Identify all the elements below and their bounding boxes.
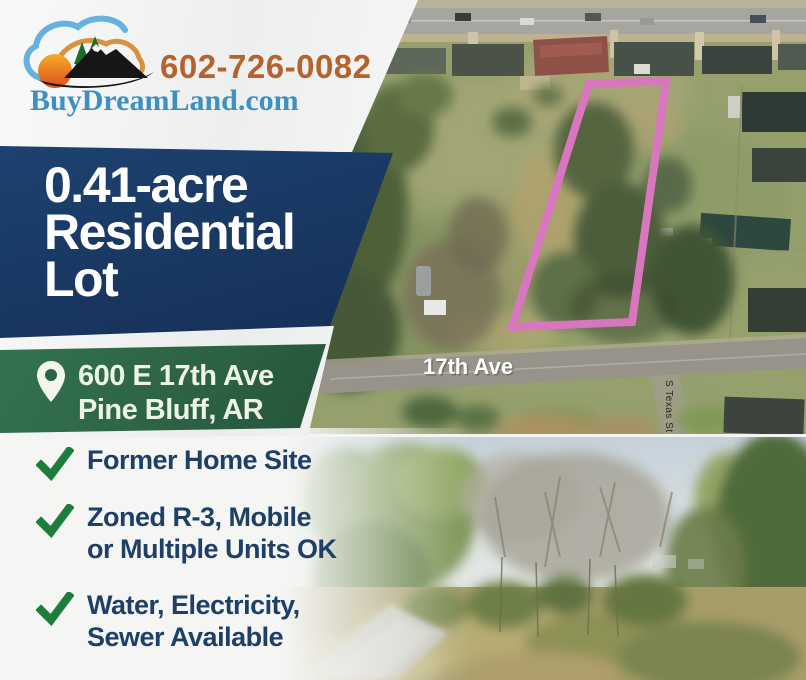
feature-line: Zoned R-3, Mobile [87, 501, 337, 533]
feature-item-former-home-site: Former Home Site [36, 444, 416, 481]
headline-text: 0.41-acre Residential Lot [44, 162, 294, 303]
address-text: 600 E 17th Ave Pine Bluff, AR [78, 359, 274, 427]
feature-list: Former Home Site Zoned R-3, Mobile or Mu… [36, 444, 416, 653]
phone-number: 602-726-0082 [160, 48, 372, 86]
website-text: BuyDreamLand.com [30, 84, 299, 118]
bottom-right-roof [723, 397, 804, 434]
location-pin-icon [36, 360, 66, 404]
headline-line-2: Residential [44, 209, 294, 256]
feature-line: Former Home Site [87, 444, 312, 476]
street-label-17th-ave: 17th Ave [423, 354, 513, 379]
feature-line: Sewer Available [87, 621, 300, 653]
address-box: 600 E 17th Ave Pine Bluff, AR [0, 342, 340, 438]
feature-text: Zoned R-3, Mobile or Multiple Units OK [87, 501, 337, 565]
checkmark-icon [36, 447, 74, 481]
checkmark-icon [36, 592, 74, 626]
sun-icon [38, 54, 72, 88]
flyer-canvas: 17th Ave 17th Ave S Texas St [0, 0, 806, 680]
headline-line-1: 0.41-acre [44, 162, 294, 209]
distant-vehicle [652, 555, 676, 568]
feature-item-zoning: Zoned R-3, Mobile or Multiple Units OK [36, 501, 416, 565]
feature-item-utilities: Water, Electricity, Sewer Available [36, 589, 416, 653]
cross-street-label: S Texas St [663, 380, 674, 433]
address-city-state: Pine Bluff, AR [78, 393, 274, 427]
address-street: 600 E 17th Ave [78, 359, 274, 393]
checkmark-icon [36, 504, 74, 538]
feature-text: Former Home Site [87, 444, 312, 476]
distant-shed [688, 559, 704, 569]
feature-line: Water, Electricity, [87, 589, 300, 621]
feature-text: Water, Electricity, Sewer Available [87, 589, 300, 653]
headline-line-3: Lot [44, 256, 294, 303]
feature-line: or Multiple Units OK [87, 533, 337, 565]
